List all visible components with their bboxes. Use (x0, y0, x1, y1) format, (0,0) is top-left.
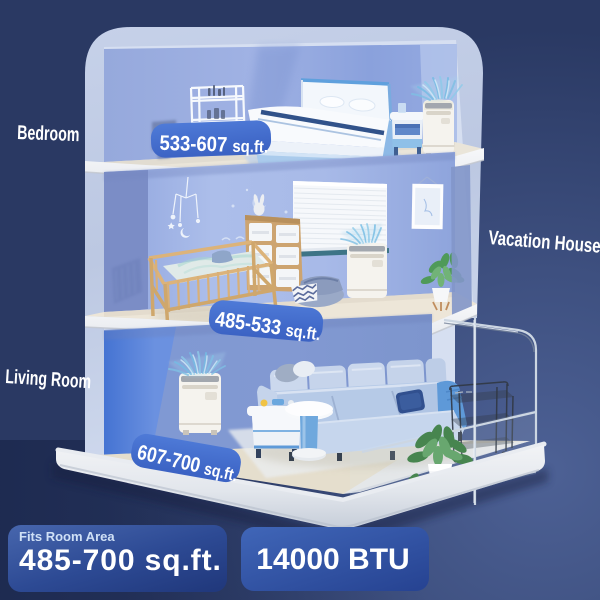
svg-text:Fits Room Area: Fits Room Area (19, 529, 115, 544)
svg-text:Bedroom: Bedroom (17, 121, 80, 146)
svg-text:485-700 sq.ft.: 485-700 sq.ft. (19, 544, 222, 577)
svg-text:14000 BTU: 14000 BTU (256, 543, 409, 576)
